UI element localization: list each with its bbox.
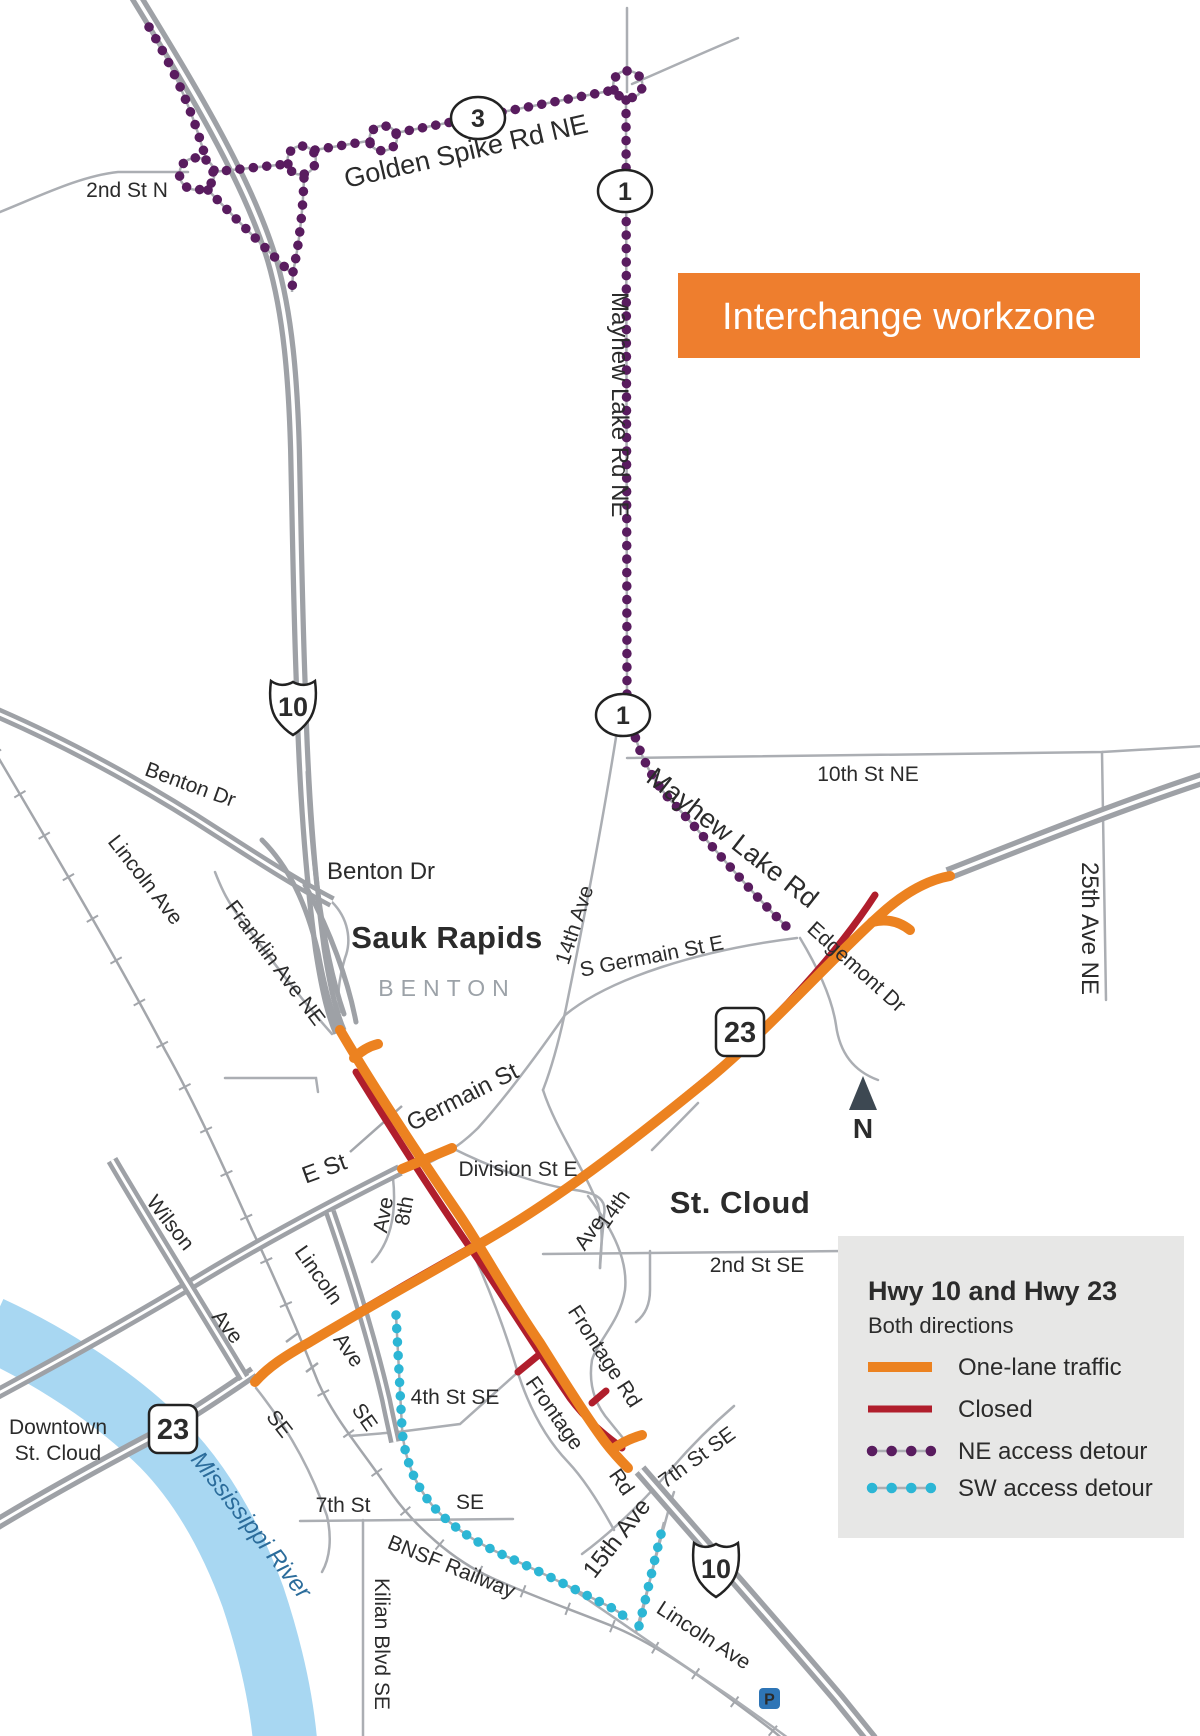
label-2nd-st-n: 2nd St N [86,179,168,202]
legend-subtitle: Both directions [868,1313,1014,1338]
rail-crossing-hwy23-tick-a [286,1333,298,1342]
label-15th-ave: 15th Ave [578,1493,657,1583]
route-1-oval-marker-top: 1 [598,170,652,212]
label-lincoln-bottom: Lincoln Ave [652,1597,754,1675]
one-lane-hwy10-spur-n [354,1044,378,1058]
road-junction-curve-ne [632,38,738,84]
label-4th-st-se: 4th St SE [411,1386,500,1409]
label-7th-st: 7th St [316,1494,371,1517]
svg-text:Closed: Closed [958,1396,1033,1423]
svg-text:1: 1 [616,702,630,730]
svg-text:P: P [764,1692,775,1709]
label-downtown-1: Downtown [9,1416,107,1439]
map-canvas: 3 1 1 10 10 23 23 Interchange workzone [0,0,1200,1736]
label-mayhew-ne: Mayhew Lake Rd NE [606,292,633,517]
svg-text:1: 1 [618,178,632,206]
svg-text:N: N [853,1113,873,1144]
svg-text:23: 23 [724,1017,756,1049]
mn-23-box-southwest: 23 [149,1405,197,1453]
label-lincoln-mid-ave: Ave [329,1329,368,1372]
one-lane-hwy23-spur-ne [872,920,910,930]
route-1-oval-marker-mid: 1 [596,694,650,736]
road-10th-st-ne [627,746,1200,758]
label-sauk-rapids: Sauk Rapids [351,920,543,955]
road-2nd-se-stub [636,1251,650,1322]
svg-text:10: 10 [278,692,308,722]
label-7th-st-suffix: SE [456,1491,484,1514]
label-14th-ave-n: 14th Ave [551,883,598,967]
svg-text:One-lane traffic: One-lane traffic [958,1354,1122,1381]
svg-text:3: 3 [471,105,485,133]
label-wilson-ave: Ave [207,1306,247,1348]
us-10-shield-south: 10 [693,1543,739,1597]
label-mayhew-lake-rd: Mayhew Lake Rd [641,762,824,914]
label-lincoln-ave-nw: Lincoln Ave [103,831,187,930]
label-10th-st-ne: 10th St NE [817,763,919,786]
label-25th-ave-ne: 25th Ave NE [1076,862,1103,995]
workzone-banner: Interchange workzone [678,273,1140,358]
label-2nd-st-se: 2nd St SE [710,1254,805,1277]
label-frontage-w: Frontage [521,1372,588,1454]
hwy10-north [135,0,340,1032]
svg-text:SW access detour: SW access detour [958,1475,1153,1502]
svg-text:23: 23 [157,1414,189,1446]
svg-text:NE access detour: NE access detour [958,1438,1147,1465]
label-kilian-blvd: Kilian Blvd SE [370,1578,393,1710]
closed-ramp-a [518,1354,540,1372]
label-7th-st-se: 7th St SE [655,1422,740,1493]
label-benton-dr-w: Benton Dr [142,758,239,812]
mn-23-box-northeast: 23 [716,1008,764,1056]
label-benton-county: BENTON [378,975,515,1001]
label-benton-dr-e: Benton Dr [327,858,435,885]
label-bnsf-railway: BNSF Railway [384,1531,519,1603]
label-division-st-e: Division St E [458,1158,577,1181]
legend: Hwy 10 and Hwy 23 Both directions One-la… [838,1236,1184,1538]
svg-text:Interchange workzone: Interchange workzone [722,296,1096,338]
label-s-germain: S Germain St E [578,931,726,981]
svg-text:10: 10 [701,1554,731,1584]
one-lane-hwy10-spur-s [612,1435,642,1450]
label-st-cloud: St. Cloud [670,1185,811,1220]
label-wilson-se: SE [261,1406,296,1442]
road-7th-st [300,1519,513,1521]
road-side-stub-sauk [225,1078,318,1092]
parking-icon: P [759,1688,780,1709]
north-arrow-icon: N [849,1076,877,1144]
detour-map: 3 1 1 10 10 23 23 Interchange workzone [0,0,1200,1736]
label-8th-ave-word: Ave [369,1195,398,1234]
legend-title: Hwy 10 and Hwy 23 [868,1276,1117,1306]
label-e-st: E St [299,1148,351,1189]
label-downtown-2: St. Cloud [15,1442,101,1465]
